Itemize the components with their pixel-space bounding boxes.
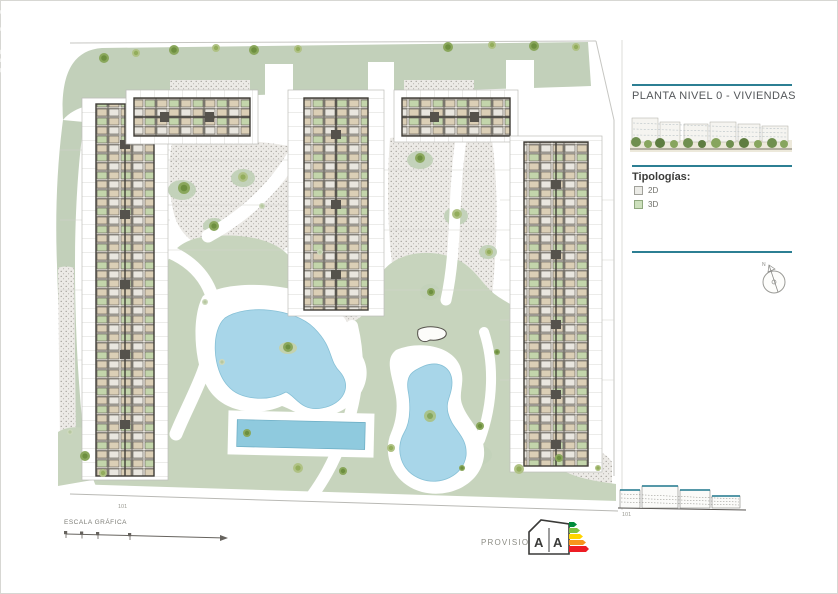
legend-swatch-2d bbox=[634, 186, 643, 195]
building-right bbox=[510, 136, 602, 472]
building-top-right bbox=[394, 90, 518, 142]
building-top-left bbox=[126, 90, 258, 144]
elevation-note: 101 bbox=[622, 512, 631, 518]
legend-heading: Tipologías: bbox=[632, 171, 690, 183]
energy-letter-right: A bbox=[553, 535, 563, 550]
sheet-note-left: 101 bbox=[118, 504, 127, 510]
building-render-image bbox=[630, 112, 792, 156]
panel-divider-middle bbox=[632, 165, 792, 167]
panel-divider-bottom bbox=[632, 251, 792, 253]
building-center bbox=[288, 90, 384, 316]
legend-item-3d: 3D bbox=[634, 200, 658, 209]
legend-item-2d: 2D bbox=[634, 186, 658, 195]
site-plan-page: draco ea PLANTA NIVEL 0 - VIVIENDAS Tipo… bbox=[0, 0, 838, 594]
legend-label-2d: 2D bbox=[648, 186, 658, 195]
building-elevation-drawing bbox=[616, 480, 748, 514]
compass-north-label: N bbox=[762, 262, 766, 268]
scale-bar bbox=[58, 524, 238, 550]
energy-rating-icon: A A bbox=[525, 516, 591, 558]
legend-label-3d: 3D bbox=[648, 200, 658, 209]
energy-letter-left: A bbox=[534, 535, 544, 550]
panel-divider-top bbox=[632, 84, 792, 86]
building-left bbox=[82, 98, 168, 480]
compass-icon: N bbox=[752, 256, 796, 300]
legend-swatch-3d bbox=[634, 200, 643, 209]
plan-title: PLANTA NIVEL 0 - VIVIENDAS bbox=[632, 90, 796, 102]
